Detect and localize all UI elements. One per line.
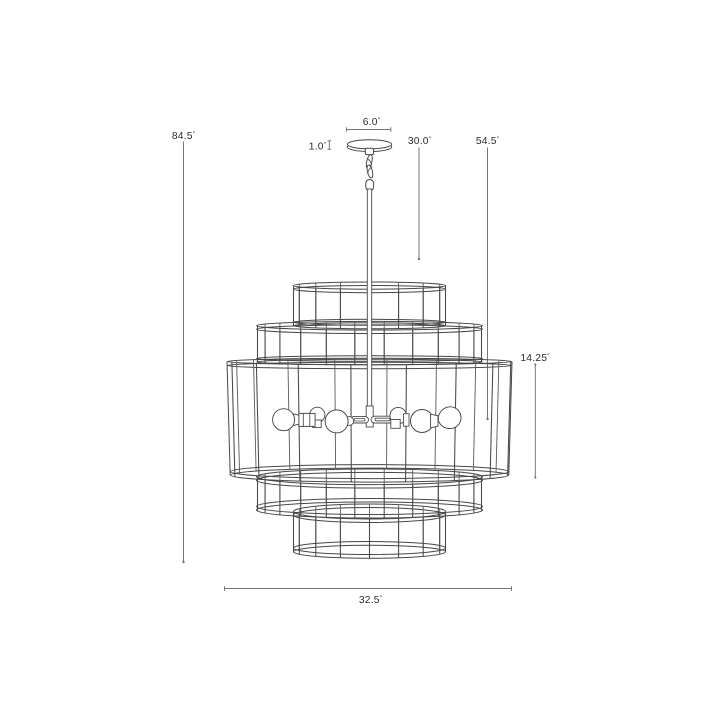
svg-text:6.0″: 6.0″ [363,117,381,128]
svg-text:84.5″: 84.5″ [172,131,196,142]
svg-text:32.5″: 32.5″ [359,595,383,606]
svg-text:1.0″: 1.0″ [309,142,327,153]
svg-text:14.25″: 14.25″ [520,353,550,364]
svg-text:54.5″: 54.5″ [476,136,500,147]
svg-text:30.0″: 30.0″ [408,136,432,147]
